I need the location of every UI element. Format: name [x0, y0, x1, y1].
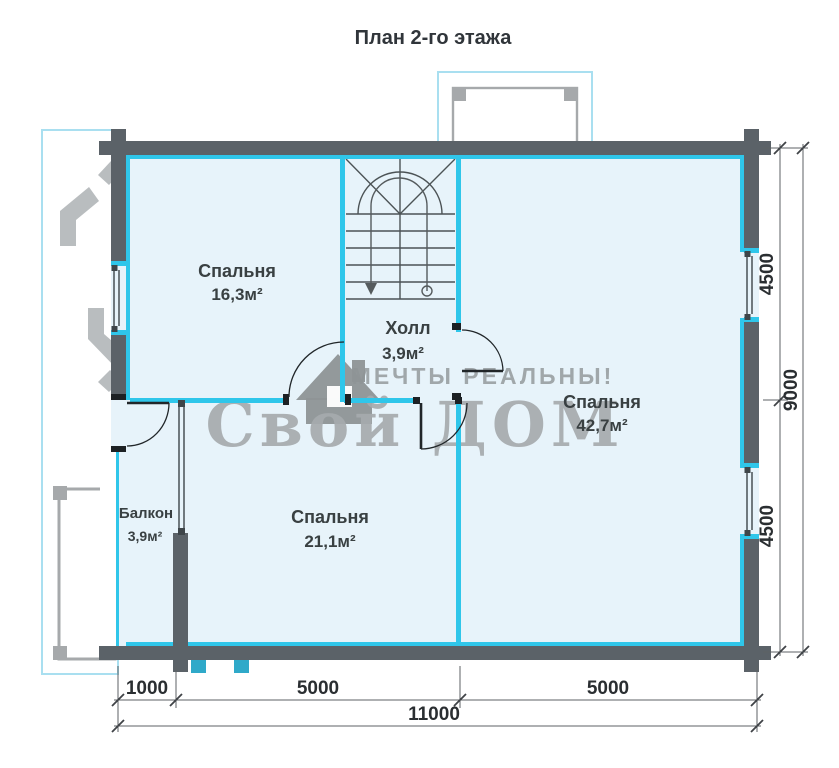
bedroom2-label: Спальня	[563, 392, 641, 412]
bedroom3-area: 21,1м²	[304, 532, 356, 551]
wall-left	[111, 129, 126, 266]
hall-label: Холл	[385, 318, 430, 338]
wall-left	[111, 330, 126, 400]
wall-right	[744, 534, 759, 672]
hall-area: 3,9м²	[382, 344, 424, 363]
floor-plan-page: План 2-го этажа МЕЧТЫ РЕАЛЬНЫ! Свой ДОМ	[0, 0, 839, 768]
dim-right-top: 4500	[757, 253, 778, 295]
dimensions-right: 4500 4500 9000	[757, 142, 809, 658]
wall-balcony	[173, 533, 188, 672]
bedroom2-area: 42,7м²	[576, 416, 628, 435]
bedroom1-area: 16,3м²	[211, 285, 263, 304]
dim-bottom-2: 5000	[297, 678, 339, 699]
dim-bottom-1: 1000	[126, 678, 168, 699]
watermark-tagline: МЕЧТЫ РЕАЛЬНЫ!	[352, 363, 615, 389]
balcony-edge	[116, 446, 119, 646]
wall-right	[744, 318, 759, 468]
balcony-area: 3,9м²	[128, 528, 163, 544]
dim-right-bottom: 4500	[757, 505, 778, 547]
floor-plan-drawing: План 2-го этажа МЕЧТЫ РЕАЛЬНЫ! Свой ДОМ	[0, 0, 839, 768]
dim-right-total: 9000	[781, 369, 802, 411]
wall-right	[744, 129, 759, 252]
outside-mask	[100, 446, 117, 660]
partition-bedroom2	[456, 398, 461, 646]
dim-bottom-total: 11000	[408, 704, 460, 725]
stair-wall-left	[340, 155, 345, 402]
dim-bottom-3: 5000	[587, 678, 629, 699]
balcony-label: Балкон	[119, 505, 173, 522]
bedroom3-label: Спальня	[291, 507, 369, 527]
stair-wall-right	[456, 155, 461, 332]
wall-top	[99, 141, 771, 155]
dormer	[438, 72, 592, 148]
dimensions-bottom: 1000 5000 5000 11000	[112, 666, 763, 732]
page-title: План 2-го этажа	[355, 27, 513, 49]
partition-horizontal	[344, 398, 420, 403]
wall-bottom	[99, 646, 771, 660]
veranda-posts	[191, 660, 249, 673]
bedroom1-label: Спальня	[198, 261, 276, 281]
